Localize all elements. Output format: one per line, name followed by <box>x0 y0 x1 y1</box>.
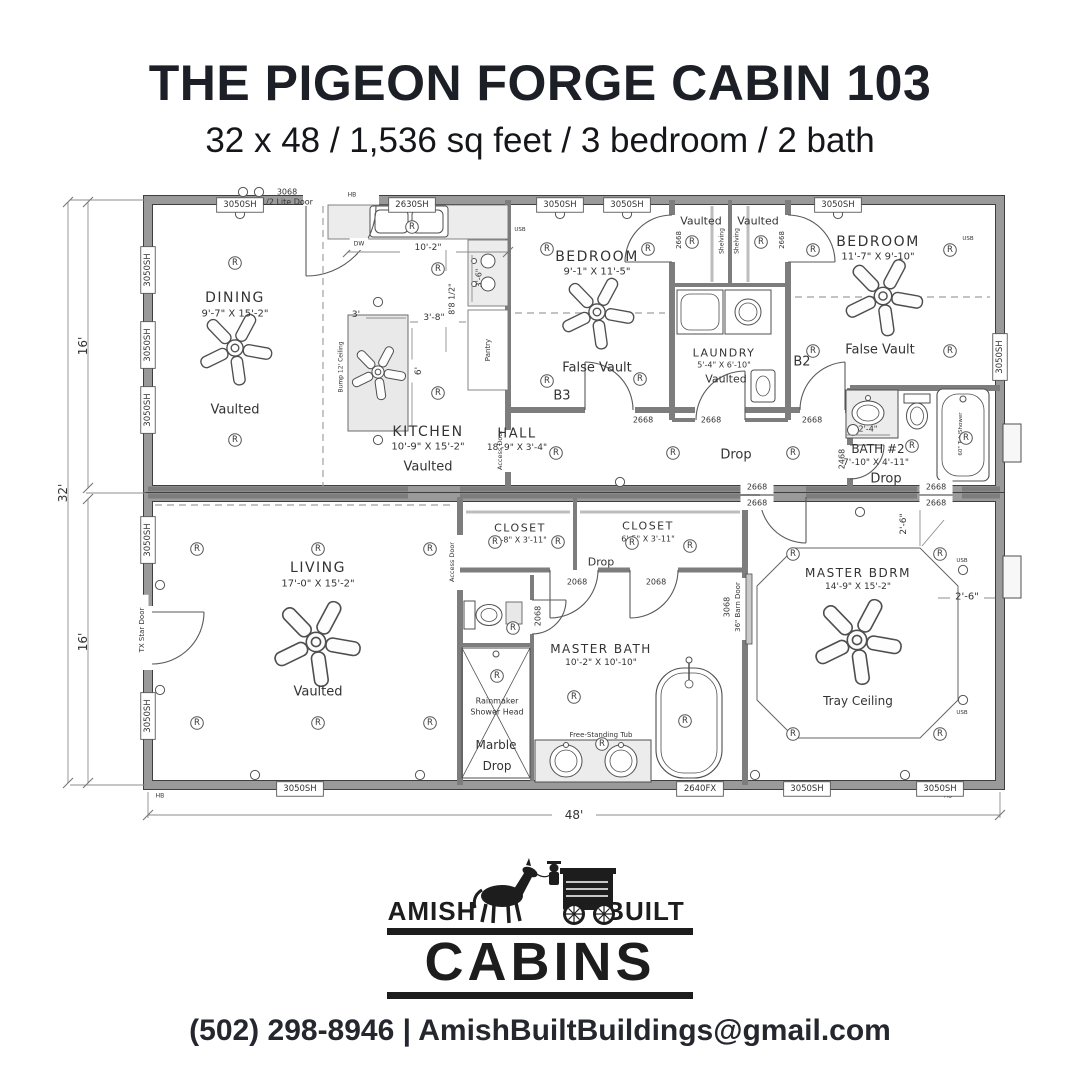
shower-head-icon <box>493 651 499 657</box>
plan-label: 32' <box>56 484 70 503</box>
plan-label: 3050SH <box>283 784 316 794</box>
plan-label: Drop <box>588 556 614 569</box>
exterior-unit <box>1003 556 1021 598</box>
recessed-light-symbol: R <box>544 244 550 254</box>
plan-label: 2'-6" <box>899 513 909 534</box>
plan-label: 3050SH <box>543 200 576 210</box>
plan-label: 2468 <box>838 449 847 469</box>
outlet-icon <box>750 770 759 779</box>
outlet-icon <box>855 507 864 516</box>
outlet-icon <box>238 187 247 196</box>
plan-label: False Vault <box>562 361 632 376</box>
plan-label: 3050SH <box>143 253 153 286</box>
logo-divider-bottom <box>387 992 693 999</box>
plan-label: Drop <box>483 759 512 773</box>
recessed-light-symbol: R <box>790 729 796 739</box>
plan-label: 2668 <box>778 231 786 249</box>
plan-label: 3050SH <box>995 340 1005 373</box>
brand-left-text: AMISH <box>388 896 477 926</box>
plan-label: 2'-6" <box>955 592 979 603</box>
plan-label: 10'-2" <box>414 243 441 253</box>
plan-label: 2668 <box>675 231 683 249</box>
plan-label: 9'-7" X 15'-2" <box>202 309 269 320</box>
recessed-light-symbol: R <box>790 448 796 458</box>
plan-label: 11'-7" X 9'-10" <box>841 252 914 263</box>
plan-label: Vaulted <box>403 460 452 475</box>
plan-label: 2668 <box>747 483 767 492</box>
plan-label: CLOSET <box>622 520 674 533</box>
recessed-light-symbol: R <box>790 549 796 559</box>
plan-label: 3050SH <box>610 200 643 210</box>
plan-label: 2640FX <box>684 784 717 794</box>
recessed-light-symbol: R <box>629 538 635 548</box>
plan-label: Shelving <box>719 228 726 254</box>
plan-label: 3050SH <box>143 699 153 732</box>
plan-label: Vaulted <box>680 215 722 228</box>
plan-label: 36" Barn Door <box>734 582 742 632</box>
plan-label: TX Star Door <box>138 608 146 654</box>
outlet-icon <box>415 770 424 779</box>
plan-label: Vaulted <box>705 373 747 386</box>
recessed-light-symbol: R <box>194 544 200 554</box>
recessed-light-symbol: R <box>963 433 969 443</box>
plan-label: Vaulted <box>737 215 779 228</box>
amish-built-cabins-logo: AMISH BUILT CABINS <box>375 856 705 1008</box>
plan-label: 5'-4" X 6'-10" <box>697 361 751 370</box>
recessed-light-symbol: R <box>909 441 915 451</box>
plan-label: 6' <box>414 367 424 375</box>
plan-label: 2068 <box>646 578 666 587</box>
recessed-light-symbol: R <box>232 435 238 445</box>
outlet-icon <box>373 297 382 306</box>
plan-label: 1/2 Lite Door <box>261 198 314 207</box>
plan-label: 3068 <box>723 597 732 617</box>
plan-label: 14'-9" X 15'-2" <box>825 582 891 592</box>
outlet-icon <box>373 435 382 444</box>
plan-label: Marble <box>476 738 517 752</box>
recessed-light-symbol: R <box>571 692 577 702</box>
recessed-light-symbol: R <box>645 244 651 254</box>
plan-label: 2068 <box>567 578 587 587</box>
fan-dining <box>199 313 272 386</box>
page-title: THE PIGEON FORGE CABIN 103 <box>0 54 1080 112</box>
fan-living <box>273 599 361 687</box>
plan-label: MASTER BDRM <box>805 566 911 580</box>
master-toilet <box>464 601 475 629</box>
recessed-light-symbol: R <box>315 718 321 728</box>
outlet-markers <box>155 187 967 779</box>
plan-label: 2668 <box>633 416 653 425</box>
plan-label: 3050SH <box>143 328 153 361</box>
recessed-light-symbol: R <box>670 448 676 458</box>
recessed-light-symbol: R <box>435 264 441 274</box>
plan-label: False Vault <box>845 343 915 358</box>
plan-label: B3 <box>553 389 570 404</box>
toilet-cabinet <box>506 602 522 624</box>
plan-label: USB <box>956 558 968 564</box>
plan-label: 2068 <box>534 606 543 626</box>
recessed-light-symbol: R <box>555 537 561 547</box>
plan-label: BEDROOM <box>836 234 920 250</box>
outlet-icon <box>155 685 164 694</box>
plan-label: 3050SH <box>923 784 956 794</box>
brand-main-text: CABINS <box>424 932 655 992</box>
plan-label: USB <box>962 236 974 242</box>
plan-label: Drop <box>870 472 901 487</box>
bath2-toilet <box>904 394 930 403</box>
plan-label: 2'-4" <box>859 425 878 434</box>
plan-label: Pantry <box>484 339 492 361</box>
recessed-light-symbol: R <box>492 537 498 547</box>
recessed-light-symbol: R <box>599 739 605 749</box>
plan-label: HB <box>156 793 165 800</box>
plan-label: USB <box>956 710 968 716</box>
recessed-light-symbol: R <box>689 237 695 247</box>
plan-label: 16' <box>76 633 90 652</box>
recessed-light-symbol: R <box>435 388 441 398</box>
plan-label: DINING <box>205 290 265 306</box>
plan-label: CLOSET <box>494 522 546 535</box>
living-entry-door <box>152 612 204 664</box>
plan-label: Drop <box>720 448 751 463</box>
plan-label: 3' <box>352 310 360 320</box>
recessed-light-symbol: R <box>810 245 816 255</box>
plan-label: B2 <box>793 355 810 370</box>
exterior-unit <box>1003 424 1021 462</box>
plan-label: LAUNDRY <box>693 347 756 360</box>
recessed-light-symbol: R <box>544 376 550 386</box>
outlet-icon <box>254 187 263 196</box>
plan-label: MASTER BATH <box>550 642 652 656</box>
plan-label: Vaulted <box>293 685 342 700</box>
plan-label: 2668 <box>926 483 946 492</box>
outlet-icon <box>958 565 967 574</box>
plan-label: HB <box>348 192 357 199</box>
recessed-light-symbol: R <box>758 237 764 247</box>
fan-master <box>814 597 902 685</box>
plan-label: KITCHEN <box>392 424 463 440</box>
plan-label: 9'-1" X 11'-5" <box>564 267 631 278</box>
plan-label: Shower Head <box>470 708 523 717</box>
plan-label: 10'-2" X 10'-10" <box>565 658 637 668</box>
plan-label: Access Door <box>496 430 504 470</box>
recessed-light-symbol: R <box>194 718 200 728</box>
outlet-icon <box>900 770 909 779</box>
recessed-light-symbol: R <box>232 258 238 268</box>
recessed-light-symbol: R <box>427 718 433 728</box>
recessed-light-symbol: R <box>494 671 500 681</box>
recessed-light-symbol: R <box>947 346 953 356</box>
plan-label: Vaulted <box>210 403 259 418</box>
ceiling-fans <box>199 258 923 687</box>
plan-label: Tray Ceiling <box>822 694 893 708</box>
plan-label: 16' <box>76 337 90 356</box>
plan-label: LIVING <box>290 560 346 576</box>
plan-label: 48' <box>565 808 584 822</box>
floor-plan: DINING9'-7" X 15'-2"VaultedKITCHEN10'-9"… <box>0 165 1080 845</box>
plan-label: 3050SH <box>223 200 256 210</box>
plan-label: 3'-8" <box>423 313 444 323</box>
recessed-light-symbol: R <box>687 541 693 551</box>
recessed-light-symbol: R <box>427 544 433 554</box>
plan-label: 2668 <box>802 416 822 425</box>
barn-door-panel <box>746 574 752 644</box>
plan-label: 3050SH <box>143 393 153 426</box>
plan-label: BEDROOM <box>555 249 639 265</box>
plan-label: Bump 12' Ceiling <box>338 341 345 392</box>
plan-label: Access Door <box>448 542 456 582</box>
plan-label: 2668 <box>701 416 721 425</box>
recessed-light-symbol: R <box>553 448 559 458</box>
plan-label: 3050SH <box>821 200 854 210</box>
plan-label: 10'-9" X 15'-2" <box>391 442 464 453</box>
plan-label: 7'-10" X 4'-11" <box>843 458 909 468</box>
plan-label: 3'-6" <box>475 269 484 288</box>
recessed-light-symbol: R <box>947 245 953 255</box>
plan-label: 2668 <box>747 499 767 508</box>
recessed-light-symbol: R <box>409 222 415 232</box>
recessed-light-symbol: R <box>315 544 321 554</box>
contact-line: (502) 298-8946 | AmishBuiltBuildings@gma… <box>0 1014 1080 1048</box>
plan-label: 8'8 1/2" <box>448 283 457 314</box>
outlet-icon <box>155 580 164 589</box>
plan-label: 3050SH <box>790 784 823 794</box>
recessed-light-symbol: R <box>937 549 943 559</box>
plan-label: 3050SH <box>143 523 153 556</box>
horse-wagon-icon <box>474 858 616 924</box>
plan-label: USB <box>514 227 526 233</box>
outlet-icon <box>250 770 259 779</box>
outlet-icon <box>958 695 967 704</box>
plan-specs-subtitle: 32 x 48 / 1,536 sq feet / 3 bedroom / 2 … <box>0 121 1080 161</box>
plan-label: Shelving <box>734 228 741 254</box>
recessed-light-symbol: R <box>810 346 816 356</box>
outlet-icon <box>615 477 624 486</box>
fan-bedroom3 <box>561 277 634 350</box>
recessed-light-symbol: R <box>937 729 943 739</box>
plan-label: DW <box>354 241 365 248</box>
recessed-light-symbol: R <box>637 374 643 384</box>
recessed-light-symbol: R <box>682 716 688 726</box>
plan-label: 17'-0" X 15'-2" <box>281 579 354 590</box>
plan-label: 3068 <box>277 188 297 197</box>
plan-label: 2668 <box>926 499 946 508</box>
recessed-light-symbol: R <box>510 623 516 633</box>
brand-right-text: BUILT <box>605 896 685 926</box>
plan-label: Rainmaker <box>476 697 520 706</box>
plan-label: 2630SH <box>395 200 428 210</box>
plan-label: BATH #2 <box>851 442 904 456</box>
